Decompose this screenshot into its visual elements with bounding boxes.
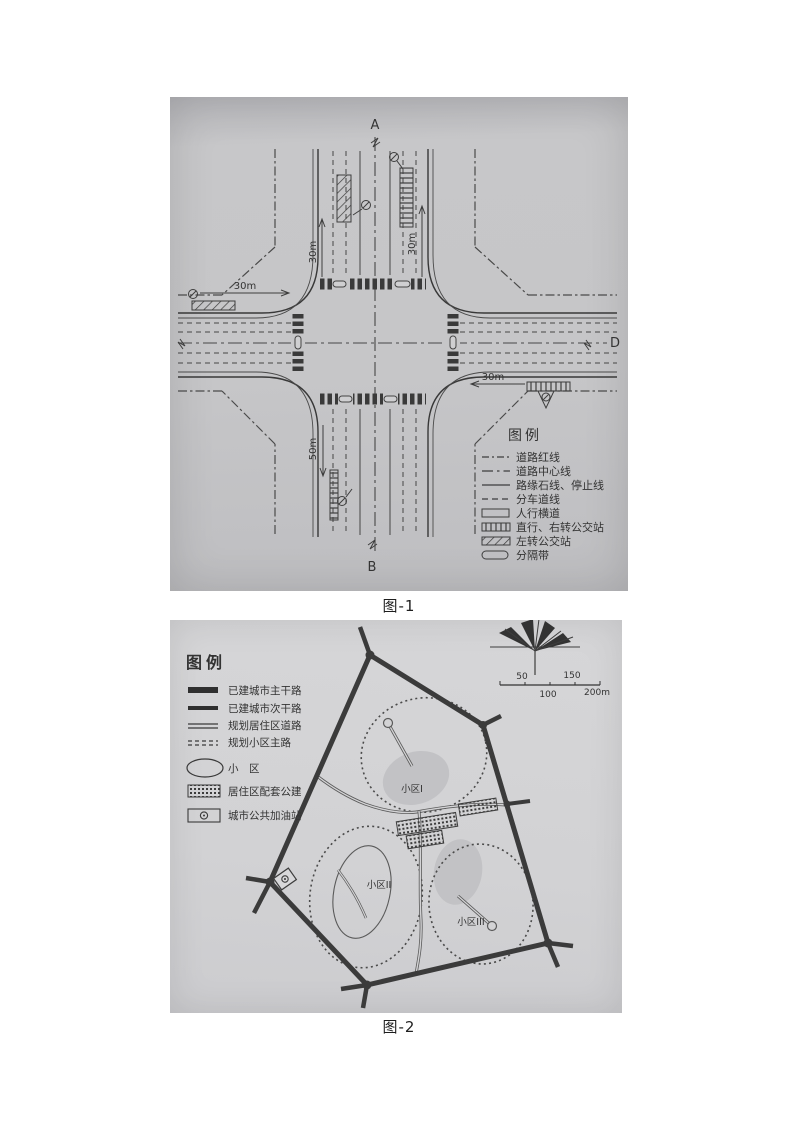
fig1-legend-label-7: 分隔带 <box>516 549 549 562</box>
circled-marks <box>189 153 551 506</box>
legend-symbol-gas-station <box>188 809 220 822</box>
fig1-legend-label-5: 直行、右转公交站 <box>516 520 604 534</box>
district-2-label: 小区II <box>367 880 392 891</box>
legend-symbol-community-road <box>188 741 218 745</box>
through-bus-stop-east <box>527 382 570 391</box>
figure-1-caption: 图-1 <box>170 595 628 616</box>
legend-symbol-secondary-road <box>188 706 218 710</box>
scale-label-200m: 200m <box>584 688 610 698</box>
dimension-labels: 30m 30m 30m 30m 50m <box>234 233 504 460</box>
dim-left: 30m <box>234 281 256 292</box>
dim-right: 30m <box>482 372 504 383</box>
figure1-legend-title: 图例 <box>508 428 542 444</box>
figure2-legend-title: 图例 <box>186 653 226 672</box>
fig2-legend-label-6: 城市公共加油站 <box>228 809 302 822</box>
legend-symbol-public-building <box>188 785 220 797</box>
legend-symbol-main-road <box>188 687 218 693</box>
dim-top-left: 30m <box>308 241 319 263</box>
figure-2-caption: 图-2 <box>170 1016 628 1037</box>
fig1-legend-label-1: 道路中心线 <box>516 464 571 478</box>
legend-symbol-residential-road <box>188 724 218 728</box>
marker-a: A <box>371 118 380 133</box>
dim-top-right: 30m <box>407 233 418 255</box>
scale-label-50: 50 <box>516 672 528 682</box>
scale-bar: 50 150 100 200m <box>500 671 610 700</box>
planning-map-drawing: 小区I 小区II 小区III <box>170 620 622 1013</box>
fig2-legend-label-2: 规划居住区道路 <box>228 719 302 732</box>
district-3-label: 小区III <box>457 917 484 928</box>
left-turn-bus-stop-west <box>192 301 235 310</box>
fig1-legend-label-0: 道路红线 <box>516 450 560 464</box>
fig2-legend-label-4: 小 区 <box>228 763 260 775</box>
figure-1-scan: 30m 30m 30m 30m 50m A B D 图例 <box>170 97 628 591</box>
figure-2-scan: 小区I 小区II 小区III <box>170 620 622 1013</box>
north-compass-icon <box>490 620 580 675</box>
left-turn-bus-stop-top <box>337 175 351 222</box>
bus-stop-bars <box>192 168 570 520</box>
fig2-legend-label-5: 居住区配套公建 <box>228 785 302 798</box>
fig1-legend-label-6: 左转公交站 <box>516 534 571 548</box>
scale-label-100: 100 <box>539 690 556 700</box>
legend-symbol-community <box>187 759 223 777</box>
dimension-lines <box>200 206 525 476</box>
scale-label-150: 150 <box>563 671 580 681</box>
fig2-legend-label-0: 已建城市主干路 <box>228 684 302 697</box>
fig1-legend-label-2: 路缘石线、停止线 <box>516 478 604 492</box>
through-bus-stop-south <box>330 470 338 520</box>
dim-bottom: 50m <box>308 438 319 460</box>
fig1-legend-label-4: 人行横道 <box>516 506 560 520</box>
fig1-legend-label-3: 分车道线 <box>516 492 560 506</box>
figure1-legend: 图例 道路红线 道路中心线 路缘石线、停止线 分车道线 人行横道 <box>482 428 604 562</box>
figure2-legend: 图例 <box>186 653 302 822</box>
marker-b: B <box>368 560 377 575</box>
fig2-legend-label-1: 已建城市次干路 <box>228 702 302 715</box>
through-bus-stop-top <box>400 168 413 227</box>
marker-d: D <box>610 336 620 351</box>
document-page: 30m 30m 30m 30m 50m A B D 图例 <box>0 0 794 1123</box>
district-1-label: 小区I <box>401 784 423 795</box>
fig2-legend-label-3: 规划小区主路 <box>228 736 291 749</box>
intersection-plan-drawing: 30m 30m 30m 30m 50m A B D 图例 <box>170 97 628 591</box>
